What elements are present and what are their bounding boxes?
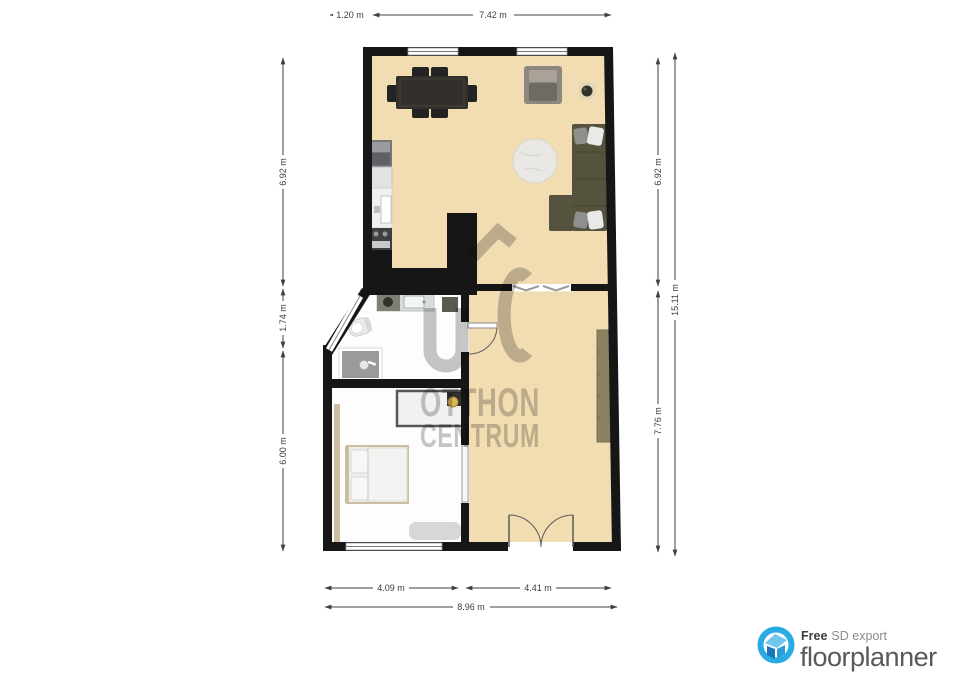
bedroom-rug bbox=[409, 522, 461, 540]
duvet bbox=[368, 448, 407, 501]
brand-name: floorplanner bbox=[800, 642, 937, 672]
dim-bottom-total: 8.96 m bbox=[457, 602, 485, 612]
wall-living-bath bbox=[363, 268, 477, 295]
armchair bbox=[524, 66, 562, 104]
wall-top bbox=[363, 47, 613, 56]
counter bbox=[370, 167, 392, 188]
shower-drain bbox=[360, 361, 369, 370]
dim-right-lower: 7.76 m bbox=[653, 407, 663, 435]
sofa-pillow bbox=[587, 210, 604, 230]
free-sd-export-label: FreeSD export bbox=[801, 629, 888, 643]
dim-bottom-left: 4.09 m bbox=[377, 583, 405, 593]
wall-left-lower bbox=[323, 345, 332, 551]
dim-right-upper: 6.92 m bbox=[653, 158, 663, 186]
vanity-plant bbox=[383, 297, 393, 307]
dim-top-offset: 1.20 m bbox=[336, 10, 364, 20]
bedroom-wall-shelf bbox=[334, 404, 340, 542]
wall-kitchen-stub bbox=[447, 213, 477, 268]
window-bedroom bbox=[346, 543, 442, 550]
sofa-pillow bbox=[573, 211, 589, 229]
sink-basin bbox=[381, 196, 391, 223]
pillow bbox=[351, 477, 368, 500]
pillow bbox=[351, 450, 368, 473]
sofa-pillow bbox=[573, 127, 589, 145]
floorplan-drawing: OTTHON CENTRUM 1.20 m 7.42 m 6.92 m 1.74… bbox=[0, 0, 960, 679]
dim-left-lower: 6.00 m bbox=[278, 437, 288, 465]
living-hall-swing-door bbox=[512, 284, 571, 292]
floorplanner-logo: FreeSD export floorplanner bbox=[761, 629, 938, 672]
dim-bottom-right: 4.41 m bbox=[524, 583, 552, 593]
wall-hall-vert-c bbox=[461, 503, 469, 542]
wall-living-hall-right bbox=[571, 284, 614, 291]
dining-table bbox=[396, 76, 468, 109]
window-top-left bbox=[408, 48, 458, 55]
double-bed bbox=[345, 446, 408, 503]
dim-top-width: 7.42 m bbox=[479, 10, 507, 20]
dim-left-middle: 1.74 m bbox=[278, 304, 288, 332]
stove bbox=[370, 228, 392, 250]
floorplan-export-page: OTTHON CENTRUM 1.20 m 7.42 m 6.92 m 1.74… bbox=[0, 0, 960, 679]
plant bbox=[578, 82, 596, 100]
window-top-right bbox=[517, 48, 567, 55]
kitchen-counter bbox=[370, 140, 392, 250]
round-rug bbox=[513, 139, 557, 183]
shower bbox=[339, 348, 382, 381]
dim-right-total: 15.11 m bbox=[670, 284, 680, 316]
free-label: Free bbox=[801, 629, 827, 643]
bath-sink bbox=[404, 296, 424, 308]
dim-left-upper: 6.92 m bbox=[278, 158, 288, 186]
headboard bbox=[345, 446, 349, 503]
sd-export-label: SD export bbox=[831, 629, 887, 643]
sofa-pillow bbox=[587, 126, 605, 146]
watermark-line2: CENTRUM bbox=[420, 417, 540, 454]
